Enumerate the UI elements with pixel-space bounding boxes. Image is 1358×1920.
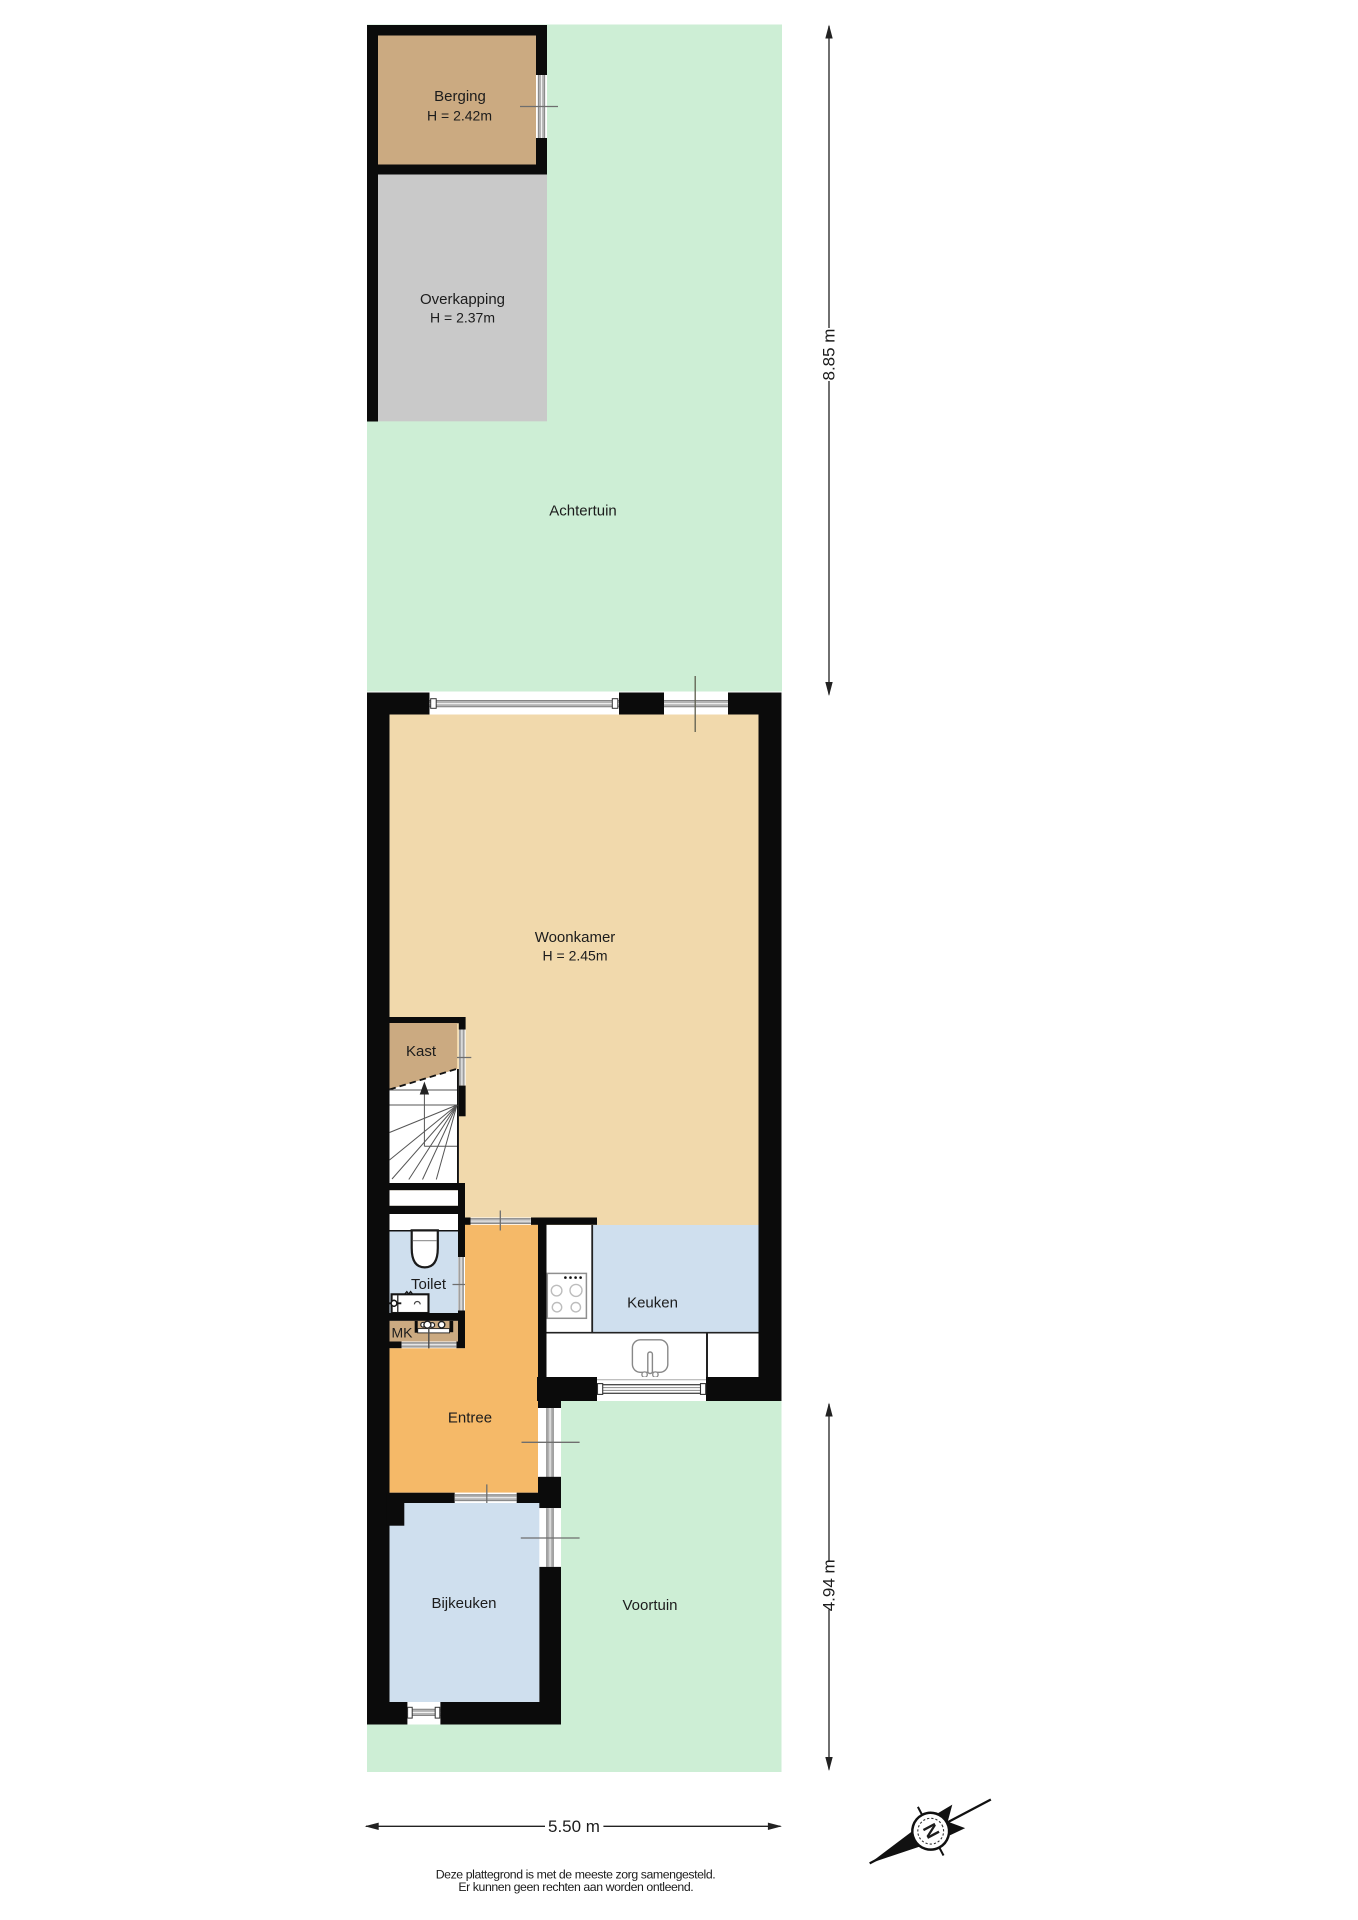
svg-text:MK: MK bbox=[392, 1325, 414, 1341]
svg-text:H = 2.42m: H = 2.42m bbox=[427, 108, 492, 124]
svg-text:Er kunnen geen rechten aan wor: Er kunnen geen rechten aan worden ontlee… bbox=[458, 1880, 693, 1894]
svg-text:Achtertuin: Achtertuin bbox=[549, 503, 617, 520]
svg-text:Voortuin: Voortuin bbox=[622, 1597, 677, 1614]
svg-text:Bijkeuken: Bijkeuken bbox=[431, 1595, 496, 1612]
svg-text:5.50 m: 5.50 m bbox=[548, 1817, 600, 1836]
svg-text:4.94 m: 4.94 m bbox=[820, 1559, 839, 1611]
svg-text:Overkapping: Overkapping bbox=[420, 291, 505, 308]
svg-text:Kast: Kast bbox=[406, 1043, 437, 1060]
svg-text:H = 2.45m: H = 2.45m bbox=[543, 948, 608, 964]
svg-text:8.85 m: 8.85 m bbox=[820, 329, 839, 381]
svg-text:Toilet: Toilet bbox=[411, 1276, 447, 1293]
svg-text:H = 2.37m: H = 2.37m bbox=[430, 310, 495, 326]
svg-text:Entree: Entree bbox=[448, 1410, 492, 1427]
svg-text:Keuken: Keuken bbox=[627, 1295, 678, 1312]
svg-text:Woonkamer: Woonkamer bbox=[535, 929, 616, 946]
svg-text:Berging: Berging bbox=[434, 88, 486, 105]
